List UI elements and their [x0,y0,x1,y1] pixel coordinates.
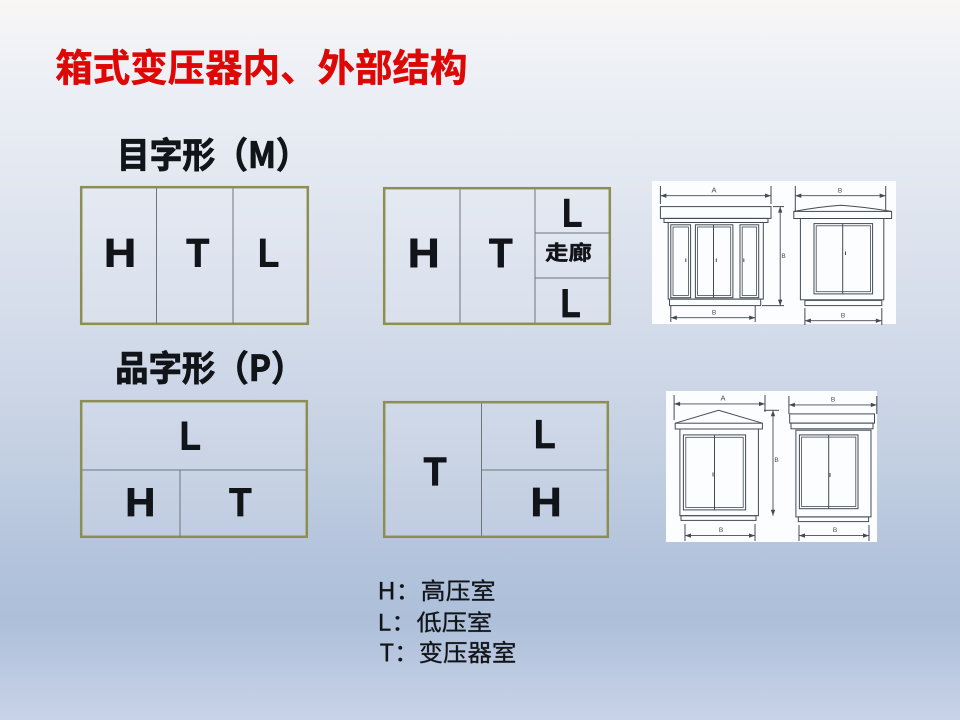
svg-text:B: B [712,310,716,317]
svg-text:B: B [719,527,723,534]
svg-text:B: B [841,313,845,320]
svg-text:B: B [833,527,837,534]
svg-text:B: B [831,397,835,404]
svg-text:B: B [774,457,778,464]
svg-text:B: B [781,253,785,260]
svg-text:B: B [838,188,842,195]
svg-text:A: A [711,186,716,195]
svg-text:A: A [720,394,725,403]
